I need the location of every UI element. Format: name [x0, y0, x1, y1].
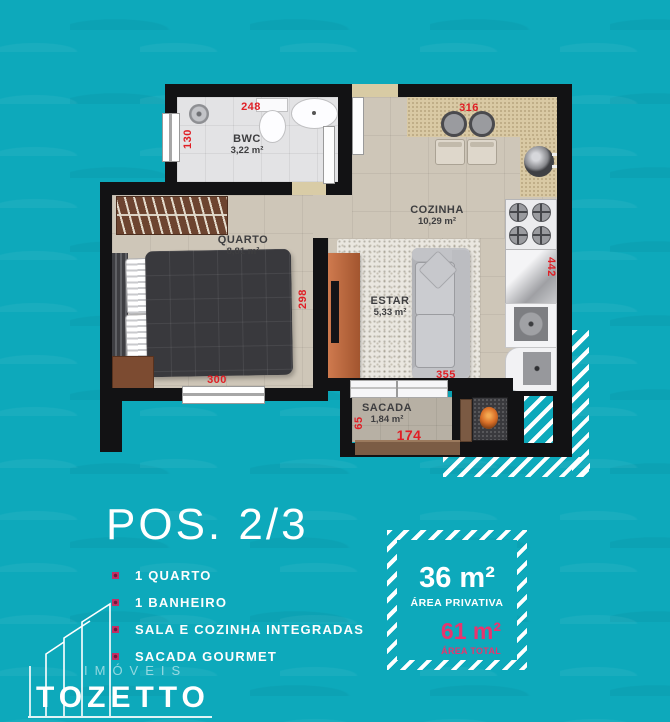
room-name: SACADA: [337, 402, 437, 415]
feature-item: 1 BANHEIRO: [112, 596, 364, 609]
entry-door-leaf: [352, 97, 364, 155]
balcony-sliding-door: [350, 380, 448, 398]
dimension-label: 298: [297, 285, 309, 313]
dimension-label: 316: [455, 102, 483, 114]
bullet-icon: [112, 653, 119, 660]
bathroom-sink: [291, 98, 338, 129]
washer-drum: [514, 307, 548, 341]
bathroom-door-threshold: [292, 182, 326, 195]
private-area-label: ÁREA PRIVATIVA: [397, 597, 517, 609]
shower-head: [189, 104, 209, 124]
feature-label: SACADA GOURMET: [135, 649, 277, 664]
dimension-label: 248: [237, 101, 265, 113]
room-label-sacada: SACADA 1,84 m²: [337, 402, 437, 426]
wall: [557, 84, 572, 457]
wardrobe-rack: [116, 196, 228, 235]
laundry-basin: [523, 352, 551, 385]
stove-burner: [532, 203, 551, 222]
cooktop-sink-1: [441, 111, 467, 137]
room-area: 1,84 m²: [337, 415, 437, 426]
room-label-estar: ESTAR 5,33 m²: [340, 295, 440, 319]
dimension-label: 130: [182, 125, 194, 153]
room-area: 3,22 m²: [197, 146, 297, 157]
stove-burner: [532, 226, 551, 245]
brand-tagline: IMÓVEIS: [84, 663, 187, 678]
feature-item: SALA E COZINHA INTEGRADAS: [112, 623, 364, 636]
bedroom-window: [182, 386, 265, 404]
stove-burner: [509, 226, 528, 245]
bathroom-door-leaf: [323, 126, 335, 184]
room-area: 10,29 m²: [387, 217, 487, 228]
kitchen-round-sink: [524, 146, 554, 177]
private-area-value: 36 m²: [397, 562, 517, 595]
feature-label: 1 QUARTO: [135, 568, 212, 583]
room-name: BWC: [197, 133, 297, 146]
room-name: ESTAR: [340, 295, 440, 308]
feature-list: 1 QUARTO 1 BANHEIRO SALA E COZINHA INTEG…: [112, 569, 364, 677]
dimension-label: 442: [545, 253, 557, 281]
cooktop-sink-2: [469, 111, 495, 137]
nightstand: [112, 356, 154, 392]
stove-burner: [509, 203, 528, 222]
grill-cabinet: [460, 399, 472, 442]
hatched-band-right: [572, 330, 589, 477]
room-area: 8,81 m²: [193, 247, 293, 258]
total-area-value: 61 m²: [397, 618, 517, 645]
feature-label: SALA E COZINHA INTEGRADAS: [135, 622, 364, 637]
bathroom-window: [162, 113, 180, 162]
wall: [165, 84, 352, 97]
room-label-bwc: BWC 3,22 m²: [197, 133, 297, 157]
entry-threshold: [352, 84, 398, 97]
total-area-label: ÁREA TOTAL: [397, 646, 517, 656]
room-area: 5,33 m²: [340, 308, 440, 319]
sofa-cushion: [415, 314, 455, 368]
wall: [338, 84, 352, 195]
double-bed: [145, 249, 293, 378]
feature-label: 1 BANHEIRO: [135, 595, 227, 610]
bar-stool-1: [435, 139, 465, 165]
room-label-cozinha: COZINHA 10,29 m²: [387, 204, 487, 228]
dimension-label: 355: [430, 369, 462, 381]
hatched-shaft: [524, 396, 553, 443]
dimension-label: 300: [200, 374, 234, 386]
bar-stool-2: [467, 139, 497, 165]
area-card: 36 m² ÁREA PRIVATIVA 61 m² ÁREA TOTAL: [387, 530, 527, 670]
room-name: QUARTO: [193, 234, 293, 247]
tv: [331, 281, 339, 343]
area-card-inner: 36 m² ÁREA PRIVATIVA 61 m² ÁREA TOTAL: [397, 540, 517, 660]
feature-item: SACADA GOURMET: [112, 650, 364, 663]
bullet-icon: [112, 626, 119, 633]
room-label-quarto: QUARTO 8,81 m²: [193, 234, 293, 258]
wall: [398, 84, 572, 97]
wall: [100, 401, 122, 452]
wall: [313, 238, 328, 401]
feature-item: 1 QUARTO: [112, 569, 364, 582]
position-title: POS. 2/3: [106, 500, 309, 550]
wall: [100, 182, 112, 401]
bullet-icon: [112, 599, 119, 606]
room-name: COZINHA: [387, 204, 487, 217]
brand-name: TOZETTO: [36, 681, 210, 715]
dimension-label: 174: [392, 427, 426, 443]
dimension-label: 65: [353, 412, 365, 434]
bullet-icon: [112, 572, 119, 579]
hatched-band-bottom: [443, 457, 590, 477]
